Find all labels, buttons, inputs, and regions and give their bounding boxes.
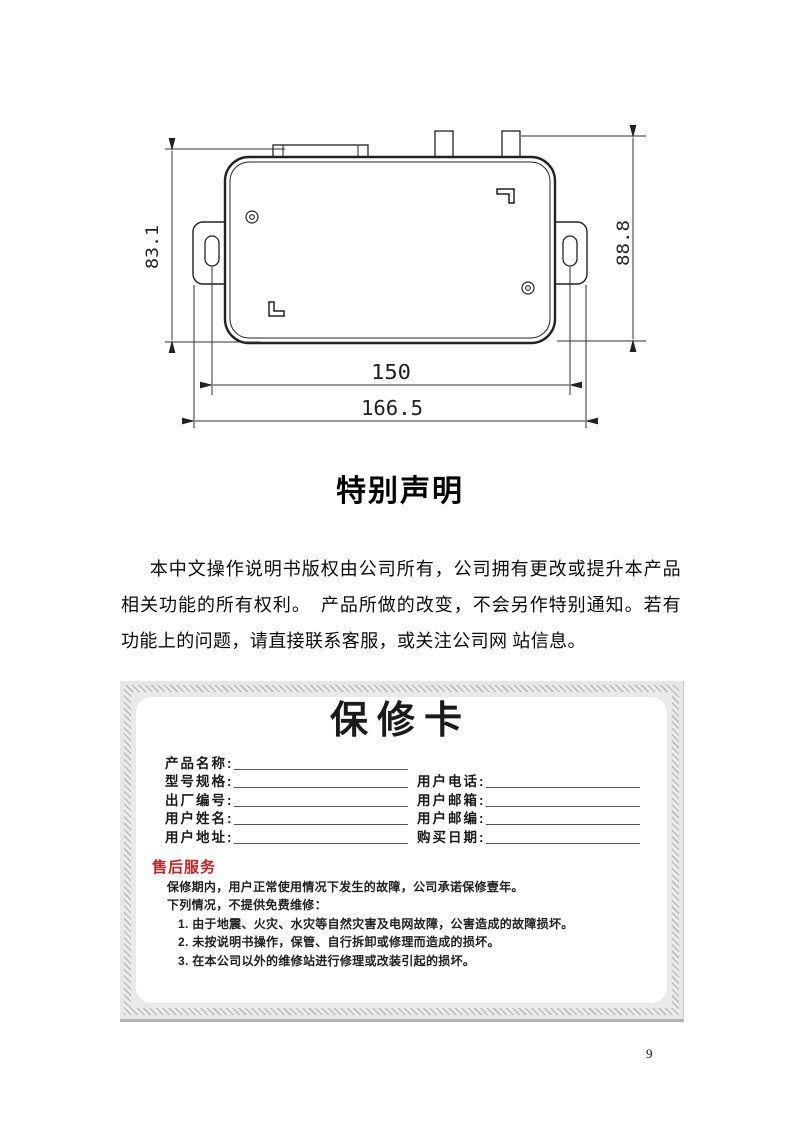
dim-width-inner: 150	[371, 360, 411, 384]
page-number: 9	[646, 1046, 653, 1062]
slot-hole-left	[205, 236, 219, 266]
warranty-card: 保修卡 产品名称:	[120, 681, 684, 1022]
field-label: 用户邮箱:	[417, 793, 486, 809]
field-user-address: 用户地址:	[165, 827, 408, 846]
service-intro-line: 下列情况，不提供免费维修：	[167, 896, 649, 915]
form-row: 出厂编号: 用户邮箱:	[165, 790, 649, 809]
field-user-email: 用户邮箱:	[417, 790, 640, 809]
service-intro-line: 保修期内，用户正常使用情况下发生的故障，公司承诺保修壹年。	[167, 878, 649, 897]
top-connector-group	[273, 131, 520, 159]
warranty-form: 产品名称: 型号规格:	[165, 753, 649, 846]
device-body-outline	[225, 157, 555, 343]
field-product-name: 产品名称:	[165, 753, 408, 772]
field-model-spec: 型号规格:	[165, 772, 408, 791]
field-label: 用户邮编:	[417, 811, 486, 827]
field-user-postcode: 用户邮编:	[417, 809, 640, 828]
fill-in-line	[234, 787, 409, 788]
fill-in-line	[234, 824, 409, 825]
field-label: 购买日期:	[417, 830, 486, 846]
statement-body: 本中文操作说明书版权由公司所有，公司拥有更改或提升本产品相关功能的所有权利。 产…	[121, 551, 681, 659]
fill-in-line	[486, 806, 641, 807]
field-factory-number: 出厂编号:	[165, 790, 408, 809]
form-row: 型号规格: 用户电话:	[165, 772, 649, 791]
field-label: 用户姓名:	[165, 811, 234, 827]
field-label: 出厂编号:	[165, 793, 234, 809]
form-row: 用户地址: 购买日期:	[165, 827, 649, 846]
field-purchase-date: 购买日期:	[417, 827, 640, 846]
slot-hole-right	[563, 236, 577, 266]
device-dimension-drawing: 83.1 88.8 150 166.5	[140, 113, 665, 445]
form-row: 产品名称:	[165, 753, 649, 772]
top-stud-right	[502, 131, 520, 159]
dim-height-left: 83.1	[143, 225, 163, 269]
fill-in-line	[486, 787, 641, 788]
fill-in-line	[234, 806, 409, 807]
service-exclusion-item: 2. 未按说明书操作，保管、自行拆卸或修理而造成的损坏。	[178, 933, 649, 952]
fill-in-line	[234, 843, 409, 844]
fill-in-line	[486, 843, 641, 844]
dim-width-outer: 166.5	[361, 396, 423, 420]
field-label: 用户电话:	[417, 774, 486, 790]
statement-title: 特别声明	[0, 466, 800, 510]
form-row: 用户姓名: 用户邮编:	[165, 809, 649, 828]
warranty-card-decorative-border: 保修卡 产品名称:	[124, 685, 679, 1015]
field-label: 用户地址:	[165, 830, 234, 846]
field-label: 产品名称:	[165, 756, 234, 772]
warranty-card-panel: 保修卡 产品名称:	[136, 697, 667, 1003]
service-exclusion-item: 3. 在本公司以外的维修站进行修理或改装引起的损坏。	[178, 952, 649, 971]
field-user-name: 用户姓名:	[165, 809, 408, 828]
fill-in-line	[486, 824, 641, 825]
top-stud-left	[435, 131, 453, 159]
dim-height-right: 88.8	[614, 220, 634, 266]
warranty-card-title: 保修卡	[152, 699, 649, 743]
service-exclusion-item: 1. 由于地震、火灾、水灾等自然灾害及电网故障，公害造成的故障损坏。	[178, 915, 649, 934]
warranty-card-border-gap: 保修卡 产品名称:	[131, 692, 672, 1008]
fill-in-line	[234, 769, 409, 770]
field-label: 型号规格:	[165, 774, 234, 790]
manual-page: 83.1 88.8 150 166.5 特别声明 本中文操作说明书版权由公司所有…	[0, 0, 800, 1130]
field-user-phone: 用户电话:	[417, 772, 640, 791]
after-sales-service-section: 售后服务 保修期内，用户正常使用情况下发生的故障，公司承诺保修壹年。 下列情况，…	[152, 858, 649, 971]
after-sales-service-heading: 售后服务	[152, 858, 649, 878]
